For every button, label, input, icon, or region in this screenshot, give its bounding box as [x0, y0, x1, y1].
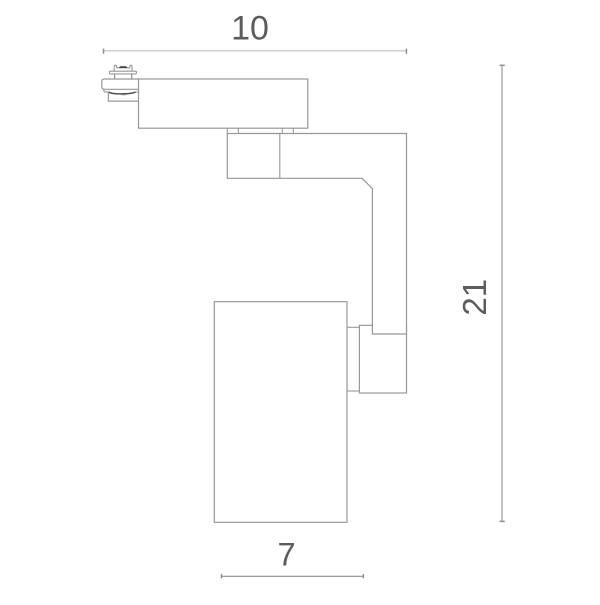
- svg-text:10: 10: [231, 9, 269, 47]
- svg-text:7: 7: [277, 536, 295, 572]
- svg-text:21: 21: [456, 279, 493, 316]
